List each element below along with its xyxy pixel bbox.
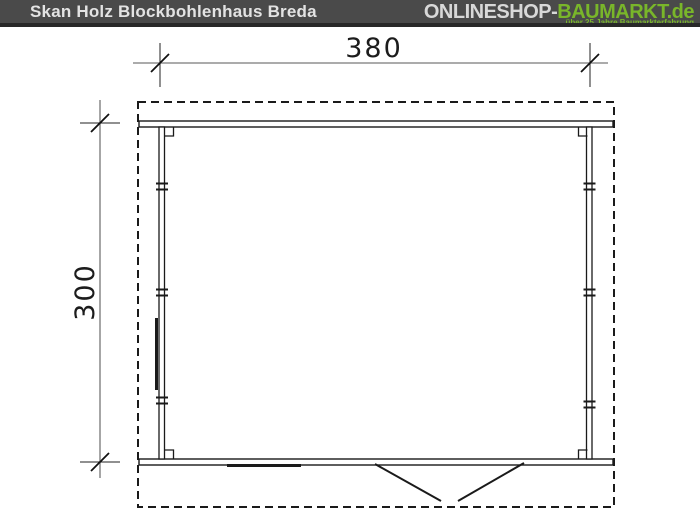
right-wall	[587, 127, 593, 459]
back-wall-beam	[139, 121, 613, 127]
dimension-label-width: 380	[338, 33, 410, 64]
door-swing-left	[375, 464, 441, 501]
page: Skan Holz Blockbohlenhaus Breda ONLINESH…	[0, 0, 700, 525]
left-wall	[159, 127, 165, 459]
door-swing-right	[458, 463, 524, 501]
dimension-label-depth: 300	[71, 260, 101, 324]
dimension-extension-lines	[80, 43, 590, 462]
roof-outline-dashed	[138, 102, 614, 507]
front-wall-window-mark	[227, 464, 301, 467]
floor-plan-drawing	[0, 0, 700, 525]
corner-bracket-top-left	[165, 127, 174, 136]
corner-bracket-bottom-left	[165, 450, 174, 459]
left-wall-window-mark	[155, 318, 158, 390]
dimension-oblique-ticks	[91, 54, 599, 471]
